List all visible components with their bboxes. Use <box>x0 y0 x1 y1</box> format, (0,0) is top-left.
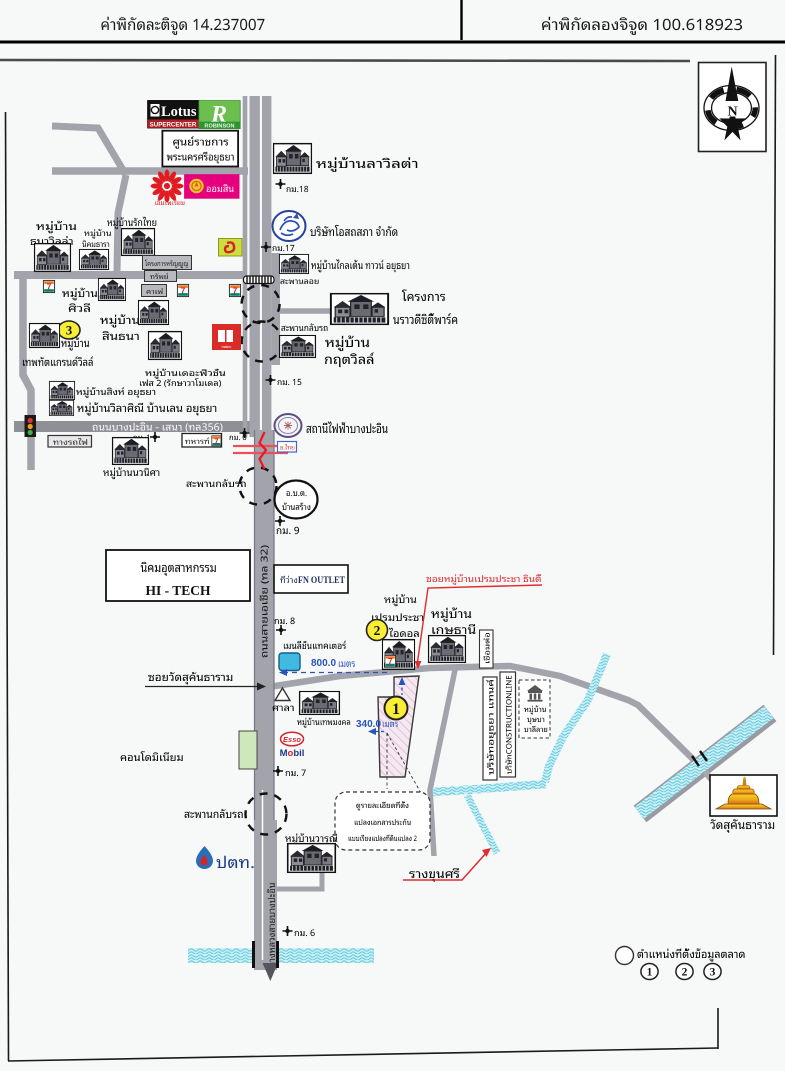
svg-text:Esso: Esso <box>283 735 301 744</box>
svg-text:1: 1 <box>392 701 400 718</box>
svg-text:2: 2 <box>374 623 381 638</box>
svg-text:HI - TECH: HI - TECH <box>145 583 211 598</box>
svg-text:Mobil: Mobil <box>280 748 305 759</box>
svg-text:340.0: 340.0 <box>356 719 381 730</box>
svg-text:N: N <box>727 105 737 120</box>
svg-text:ROBINSON: ROBINSON <box>204 123 234 129</box>
svg-text:3: 3 <box>66 323 73 338</box>
svg-text:Lotus: Lotus <box>161 104 197 120</box>
svg-text:FN OUTLET: FN OUTLET <box>298 576 346 586</box>
svg-text:2: 2 <box>682 967 688 979</box>
svg-text:makro: makro <box>222 345 232 349</box>
svg-text:800.0: 800.0 <box>311 658 336 669</box>
svg-text:SUPERCENTER: SUPERCENTER <box>150 121 197 128</box>
svg-text:3: 3 <box>710 967 716 979</box>
svg-text:1: 1 <box>647 967 653 979</box>
